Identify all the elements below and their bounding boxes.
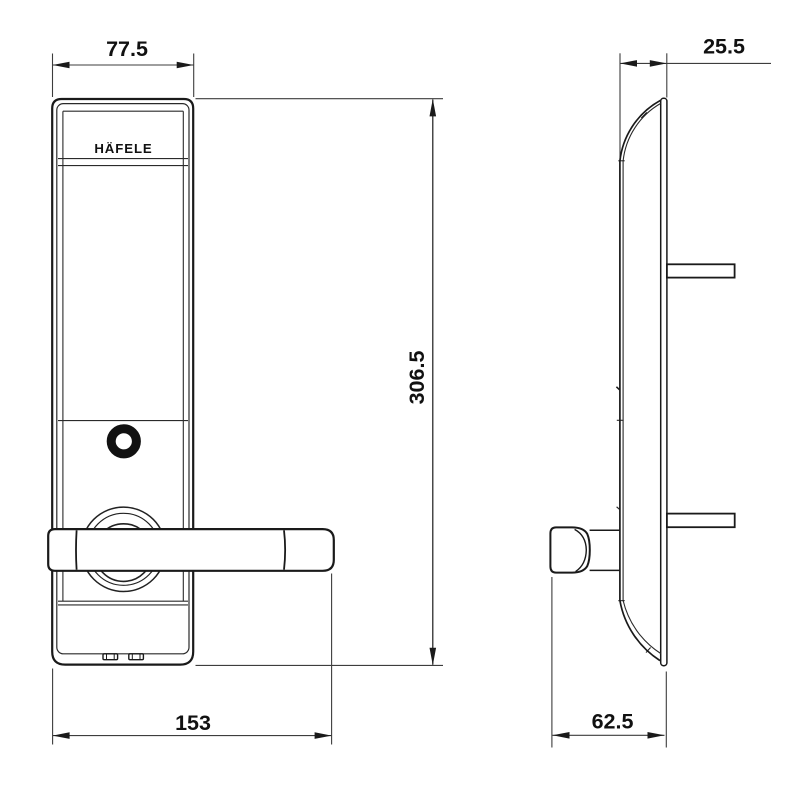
svg-text:25.5: 25.5	[703, 35, 745, 59]
svg-text:153: 153	[175, 711, 211, 735]
svg-text:77.5: 77.5	[106, 37, 148, 61]
svg-text:HÄFELE: HÄFELE	[94, 141, 152, 156]
svg-text:306.5: 306.5	[405, 351, 429, 405]
svg-text:62.5: 62.5	[592, 710, 634, 734]
